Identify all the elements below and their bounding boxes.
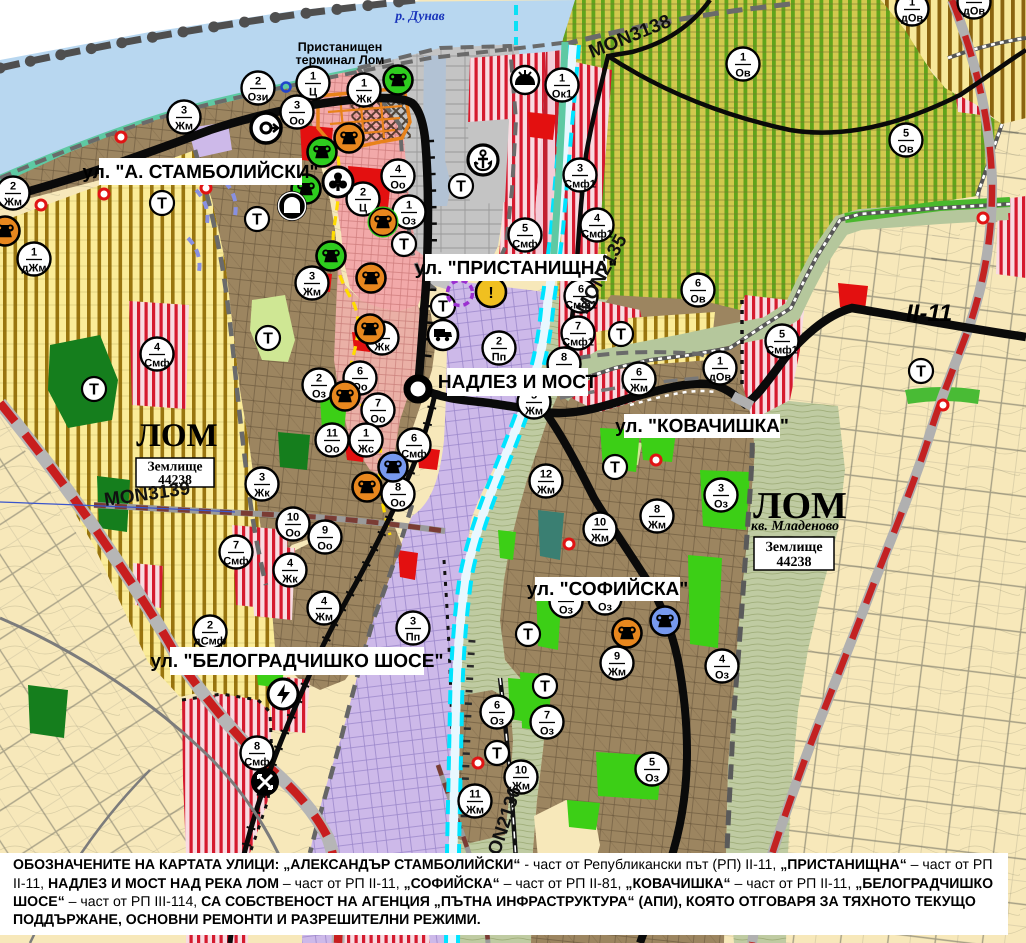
svg-text:Оз: Оз [402,216,417,228]
svg-text:1: 1 [971,0,977,2]
svg-text:ШОСЕ“ – част от РП III-114, СА: ШОСЕ“ – част от РП III-114, СА СОБСТВЕНО… [13,893,976,909]
svg-text:9: 9 [614,651,620,663]
svg-text:дОв: дОв [901,13,924,25]
svg-text:Жс: Жс [357,444,374,456]
svg-text:Жм: Жм [302,287,321,299]
svg-text:7: 7 [575,321,581,333]
svg-text:1: 1 [361,78,367,90]
svg-text:T: T [916,364,926,381]
svg-text:Жк: Жк [253,488,270,500]
svg-text:II-11, НАДЛЕЗ И МОСТ НАД РЕКА: II-11, НАДЛЕЗ И МОСТ НАД РЕКА ЛОМ – част… [13,875,993,891]
svg-text:1: 1 [717,356,723,368]
svg-text:ул. "СОФИЙСКА": ул. "СОФИЙСКА" [527,577,689,600]
svg-text:6: 6 [357,366,363,378]
svg-text:T: T [523,627,533,644]
svg-text:1: 1 [559,73,565,85]
svg-text:4: 4 [154,342,161,354]
svg-text:кв. Младеново: кв. Младеново [751,519,839,534]
svg-text:T: T [456,179,466,196]
svg-text:3: 3 [181,105,187,117]
svg-text:T: T [157,196,167,213]
svg-text:T: T [252,212,262,229]
svg-text:2: 2 [360,187,366,199]
svg-text:Жм: Жм [647,520,666,532]
svg-text:ул. "БЕЛОГРАДЧИШКО ШОСЕ": ул. "БЕЛОГРАДЧИШКО ШОСЕ" [151,651,444,672]
svg-text:1: 1 [406,200,412,212]
svg-text:терминал Лом: терминал Лом [296,53,385,67]
svg-text:Оо: Оо [317,541,333,553]
svg-text:Оз: Оз [715,670,730,682]
svg-text:10: 10 [287,512,299,524]
svg-text:6: 6 [695,278,701,290]
svg-text:дСмф: дСмф [194,636,227,648]
svg-text:Смф1: Смф1 [564,179,596,191]
svg-text:ПОДДЪРЖАНЕ, ОСНОВНИ РЕМОНТИ И: ПОДДЪРЖАНЕ, ОСНОВНИ РЕМОНТИ И РАЗРЕШИТЕЛ… [13,911,481,927]
svg-text:Смф: Смф [223,556,249,568]
svg-text:Жм: Жм [629,383,648,395]
svg-text:6: 6 [494,700,500,712]
svg-text:дЖм: дЖм [21,263,46,275]
svg-text:12: 12 [540,469,552,481]
svg-text:Ов: Ов [735,68,751,80]
svg-text:8: 8 [395,482,401,494]
svg-text:Оз: Оз [559,605,574,617]
svg-text:2: 2 [255,76,261,88]
svg-text:Пристанищен: Пристанищен [298,40,383,54]
svg-text:10: 10 [594,517,606,529]
svg-text:3: 3 [718,483,724,495]
svg-text:Оз: Оз [490,716,505,728]
svg-text:Оо: Оо [285,528,301,540]
svg-text:Жм: Жм [524,406,543,418]
svg-text:Ов: Ов [690,294,706,306]
svg-text:8: 8 [254,741,260,753]
svg-text:Оз: Оз [714,499,729,511]
svg-text:8: 8 [654,504,660,516]
svg-text:T: T [610,460,620,477]
svg-text:Жм: Жм [590,533,609,545]
svg-text:Жк: Жк [355,94,372,106]
svg-text:4: 4 [719,654,726,666]
svg-text:2: 2 [496,336,502,348]
svg-text:1: 1 [740,52,746,64]
svg-text:2: 2 [10,181,16,193]
svg-text:Землище: Землище [765,540,822,555]
svg-text:Оо: Оо [324,444,340,456]
svg-text:6: 6 [411,433,417,445]
svg-text:T: T [263,331,273,348]
svg-text:Ов: Ов [898,144,914,156]
svg-text:Оз: Оз [598,602,613,614]
svg-text:T: T [540,679,550,696]
svg-text:3: 3 [309,271,315,283]
svg-text:Оо: Оо [390,180,406,192]
svg-text:T: T [399,237,409,254]
svg-text:Смф1: Смф1 [581,229,613,241]
svg-text:Смф1: Смф1 [766,345,798,357]
svg-text:Смф: Смф [144,358,170,370]
svg-text:T: T [89,382,99,399]
svg-text:1: 1 [909,0,915,9]
svg-text:4: 4 [594,213,601,225]
svg-text:4: 4 [321,596,328,608]
svg-text:5: 5 [522,223,528,235]
svg-text:ЛОМ: ЛОМ [136,418,217,454]
svg-text:11: 11 [326,428,338,440]
svg-text:Смф: Смф [244,757,270,769]
svg-text:7: 7 [233,540,239,552]
svg-text:11: 11 [469,789,481,801]
svg-text:ОБОЗНАЧЕНИТЕ НА КАРТАТА УЛИЦИ:: ОБОЗНАЧЕНИТЕ НА КАРТАТА УЛИЦИ: „АЛЕКСАНД… [13,856,992,872]
svg-text:ул. "А. СТАМБОЛИЙСКИ": ул. "А. СТАМБОЛИЙСКИ" [82,160,318,183]
svg-text:ул. "КОВАЧИШКА": ул. "КОВАЧИШКА" [615,416,789,437]
svg-text:1: 1 [363,428,369,440]
svg-text:Жм: Жм [174,121,193,133]
svg-text:9: 9 [322,525,328,537]
svg-text:Пп: Пп [492,352,507,364]
svg-text:1: 1 [31,247,37,259]
svg-text:Оо: Оо [390,498,406,510]
svg-text:3: 3 [294,100,300,112]
svg-text:Оо: Оо [289,116,305,128]
svg-text:T: T [616,327,626,344]
svg-text:6: 6 [636,367,642,379]
svg-text:ул. "ПРИСТАНИЩНА": ул. "ПРИСТАНИЩНА" [415,258,618,279]
svg-text:Оз: Оз [312,389,327,401]
svg-text:Пп: Пп [406,632,421,644]
svg-text:Смф: Смф [512,239,538,251]
svg-text:Жм: Жм [3,197,22,209]
svg-text:Жм: Жм [607,667,626,679]
svg-text:Ц: Ц [309,87,317,99]
svg-text:4: 4 [287,558,294,570]
svg-text:Оз: Оз [645,773,660,785]
svg-text:44238: 44238 [777,555,812,570]
svg-text:!: ! [488,285,493,302]
svg-text:Ок1: Ок1 [552,89,572,101]
svg-text:дОв: дОв [963,6,986,18]
svg-text:5: 5 [779,329,785,341]
svg-text:3: 3 [410,616,416,628]
svg-text:7: 7 [375,398,381,410]
svg-text:1: 1 [310,71,316,83]
svg-text:Оз: Оз [540,726,555,738]
svg-text:7: 7 [544,710,550,722]
svg-text:4: 4 [395,164,402,176]
svg-text:Жм: Жм [465,805,484,817]
svg-text:5: 5 [903,128,909,140]
svg-text:дОв: дОв [709,372,732,384]
svg-text:II-11: II-11 [906,300,952,327]
svg-text:3: 3 [259,472,265,484]
svg-text:Ц: Ц [359,203,367,215]
svg-text:Жм: Жм [314,612,333,624]
svg-text:2: 2 [316,373,322,385]
svg-text:Жм: Жм [536,485,555,497]
svg-text:2: 2 [207,620,213,632]
svg-text:Ози: Ози [248,92,269,104]
svg-text:НАДЛЕЗ И МОСТ: НАДЛЕЗ И МОСТ [438,372,598,393]
svg-text:р. Дунав: р. Дунав [394,8,444,23]
svg-text:10: 10 [515,765,527,777]
svg-text:T: T [438,299,448,316]
svg-text:Жк: Жк [281,574,298,586]
svg-text:5: 5 [649,757,655,769]
svg-text:3: 3 [577,163,583,175]
svg-text:T: T [492,746,502,763]
svg-text:8: 8 [561,352,567,364]
